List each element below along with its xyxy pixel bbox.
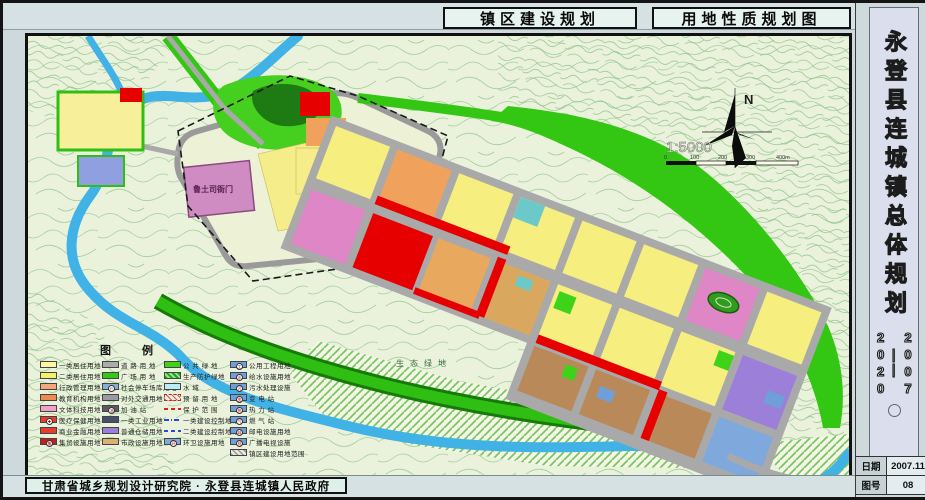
legend-swatch xyxy=(40,405,57,412)
legend-swatch xyxy=(164,394,181,401)
legend-swatch: 工 xyxy=(230,361,247,368)
legend-item: 文体科技用地 xyxy=(40,403,101,414)
legend-swatch xyxy=(164,430,181,432)
svg-text:0: 0 xyxy=(664,155,667,161)
legend-label: 对外交通用地 xyxy=(121,393,163,403)
legend-item: 生产防护绿地 xyxy=(164,370,239,381)
west-utility-block xyxy=(78,156,124,186)
legend-swatch xyxy=(102,394,119,401)
legend-label: 生产防护绿地 xyxy=(183,371,225,381)
right-title-panel: 永登县连城镇总体规划 2007 —— 2020 日期 2007.11 图号 08 xyxy=(855,3,925,497)
date-row: 日期 2007.11 xyxy=(856,457,925,476)
legend-item: 集集贸设施用地 xyxy=(40,436,101,447)
legend-swatch: 变 xyxy=(230,394,247,401)
legend-swatch: 集 xyxy=(40,438,57,445)
legend-swatch: 环 xyxy=(164,438,181,445)
legend-label: 给水设施用地 xyxy=(249,371,291,381)
scale-ratio-text: 1:5000 xyxy=(666,139,712,156)
legend-swatch xyxy=(164,361,181,368)
legend-swatch xyxy=(164,419,181,421)
legend-swatch: 视 xyxy=(230,438,247,445)
legend-label: 污水处理设施 xyxy=(249,382,291,392)
vertical-title-strip: 永登县连城镇总体规划 2007 —— 2020 xyxy=(869,7,919,459)
sheet-number-value: 08 xyxy=(887,476,925,494)
date-label: 日期 xyxy=(856,457,887,475)
sheet-number-row: 图号 08 xyxy=(856,476,925,495)
legend-swatch xyxy=(164,372,181,379)
legend-label: 加 油 站 xyxy=(121,404,147,414)
legend-swatch xyxy=(102,372,119,379)
svg-text:400m: 400m xyxy=(776,155,790,161)
historic-red-block xyxy=(300,92,330,116)
legend-label: 变 电 站 xyxy=(249,393,275,403)
legend-label: 行政管理用地 xyxy=(59,382,101,392)
legend-label: 商业金融用地 xyxy=(59,426,101,436)
legend-label: 保 护 范 围 xyxy=(183,404,218,414)
svg-text:300: 300 xyxy=(746,155,755,161)
legend-label: 广播电视设施 xyxy=(249,437,291,447)
legend-item: 邮邮电设施用地 xyxy=(230,425,305,436)
legend-item: 镇区建设用地范围 xyxy=(230,447,305,458)
map-frame: 鲁土司衙门 xyxy=(25,33,852,480)
legend-label: 镇区建设用地范围 xyxy=(249,448,305,458)
legend-swatch xyxy=(102,416,119,423)
legend-item: 水 域 xyxy=(164,381,239,392)
legend-label: 文体科技用地 xyxy=(59,404,101,414)
legend-swatch xyxy=(40,427,57,434)
legend-label: 公 共 绿 地 xyxy=(183,360,218,370)
legend-swatch: 油 xyxy=(102,405,119,412)
legend-column-4: 工公用工程用地水给水设施用地污污水处理设施变变 电 站热热 力 站气燃 气 站邮… xyxy=(230,359,305,458)
legend-swatch: ✚ xyxy=(40,416,57,423)
legend-label: 预 留 用 地 xyxy=(183,393,218,403)
legend-label: 集贸设施用地 xyxy=(59,437,101,447)
legend-label: 广 场 用 地 xyxy=(121,371,156,381)
legend-column-3: 公 共 绿 地生产防护绿地水 域预 留 用 地保 护 范 围一类建设控制地带二类… xyxy=(164,359,239,447)
footer-band: 甘肃省城乡规划设计研究院 · 永登县连城镇人民政府 xyxy=(3,475,855,497)
map-legend: 图 例 一类居住用地二类居住用地行政管理用地教育机构用地文体科技用地✚医疗保健用… xyxy=(38,342,338,470)
sheet-info-table: 日期 2007.11 图号 08 xyxy=(856,456,925,495)
legend-label: 邮电设施用地 xyxy=(249,426,291,436)
legend-swatch xyxy=(164,383,181,390)
legend-item: 二类居住用地 xyxy=(40,370,101,381)
legend-item: 热热 力 站 xyxy=(230,403,305,414)
credit-text: 甘肃省城乡规划设计研究院 · 永登县连城镇人民政府 xyxy=(42,478,330,494)
legend-title: 图 例 xyxy=(100,342,167,358)
legend-item: 公 共 绿 地 xyxy=(164,359,239,370)
legend-swatch: P xyxy=(102,383,119,390)
legend-label: 普通仓储用地 xyxy=(121,426,163,436)
legend-swatch: 邮 xyxy=(230,427,247,434)
legend-swatch xyxy=(164,408,181,410)
legend-item: ✚医疗保健用地 xyxy=(40,414,101,425)
sheet-number-label: 图号 xyxy=(856,476,887,494)
legend-swatch xyxy=(230,449,247,456)
date-value: 2007.11 xyxy=(887,457,925,475)
legend-label: 环卫设施用地 xyxy=(183,437,225,447)
legend-item: 变变 电 站 xyxy=(230,392,305,403)
legend-item: 二类建设控制地带 xyxy=(164,425,239,436)
legend-item: 视广播电视设施 xyxy=(230,436,305,447)
svg-text:200: 200 xyxy=(718,155,727,161)
title-landuse-map: 用地性质规划图 xyxy=(652,7,851,29)
legend-item: 污污水处理设施 xyxy=(230,381,305,392)
legend-label: 水 域 xyxy=(183,382,199,392)
legend-swatch: 水 xyxy=(230,372,247,379)
legend-swatch xyxy=(40,394,57,401)
legend-label: 医疗保健用地 xyxy=(59,415,101,425)
legend-item: 商业金融用地 xyxy=(40,425,101,436)
legend-item: 教育机构用地 xyxy=(40,392,101,403)
plan-years: 2007 —— 2020 xyxy=(874,330,915,398)
legend-item: 一类居住用地 xyxy=(40,359,101,370)
title-left-text: 镇区建设规划 xyxy=(480,8,600,29)
legend-label: 市政设施用地 xyxy=(121,437,163,447)
credit-box: 甘肃省城乡规划设计研究院 · 永登县连城镇人民政府 xyxy=(25,477,347,494)
legend-item: 水给水设施用地 xyxy=(230,370,305,381)
legend-swatch xyxy=(102,438,119,445)
legend-label: 公用工程用地 xyxy=(249,360,291,370)
heritage-site-label: 鲁土司衙门 xyxy=(192,184,233,194)
legend-swatch xyxy=(40,383,57,390)
legend-item: 气燃 气 站 xyxy=(230,414,305,425)
legend-label: 二类居住用地 xyxy=(59,371,101,381)
title-right-text: 用地性质规划图 xyxy=(681,8,821,29)
legend-column-1: 一类居住用地二类居住用地行政管理用地教育机构用地文体科技用地✚医疗保健用地商业金… xyxy=(40,359,101,447)
north-label: N xyxy=(744,92,753,107)
legend-item: 一类建设控制地带 xyxy=(164,414,239,425)
title-construction-plan: 镇区建设规划 xyxy=(443,7,637,29)
svg-text:100: 100 xyxy=(690,155,699,161)
legend-swatch xyxy=(102,427,119,434)
plan-title-vertical: 永登县连城镇总体规划 xyxy=(883,30,905,320)
legend-label: 教育机构用地 xyxy=(59,393,101,403)
legend-swatch xyxy=(102,361,119,368)
legend-swatch: 气 xyxy=(230,416,247,423)
legend-item: 环环卫设施用地 xyxy=(164,436,239,447)
eco-green-label: 生态绿地 xyxy=(396,358,452,368)
legend-label: 一类工业用地 xyxy=(121,415,163,425)
legend-item: 保 护 范 围 xyxy=(164,403,239,414)
legend-label: 一类居住用地 xyxy=(59,360,101,370)
west-commercial-block xyxy=(120,88,142,102)
legend-swatch: 热 xyxy=(230,405,247,412)
legend-swatch xyxy=(40,372,57,379)
legend-item: 预 留 用 地 xyxy=(164,392,239,403)
plan-sheet: 镇区建设规划 用地性质规划图 xyxy=(0,0,925,500)
legend-item: 行政管理用地 xyxy=(40,381,101,392)
legend-label: 燃 气 站 xyxy=(249,415,275,425)
legend-item: 工公用工程用地 xyxy=(230,359,305,370)
legend-label: 道 路 用 地 xyxy=(121,360,156,370)
seal-icon xyxy=(888,404,901,417)
legend-swatch xyxy=(40,361,57,368)
legend-label: 热 力 站 xyxy=(249,404,275,414)
legend-swatch: 污 xyxy=(230,383,247,390)
